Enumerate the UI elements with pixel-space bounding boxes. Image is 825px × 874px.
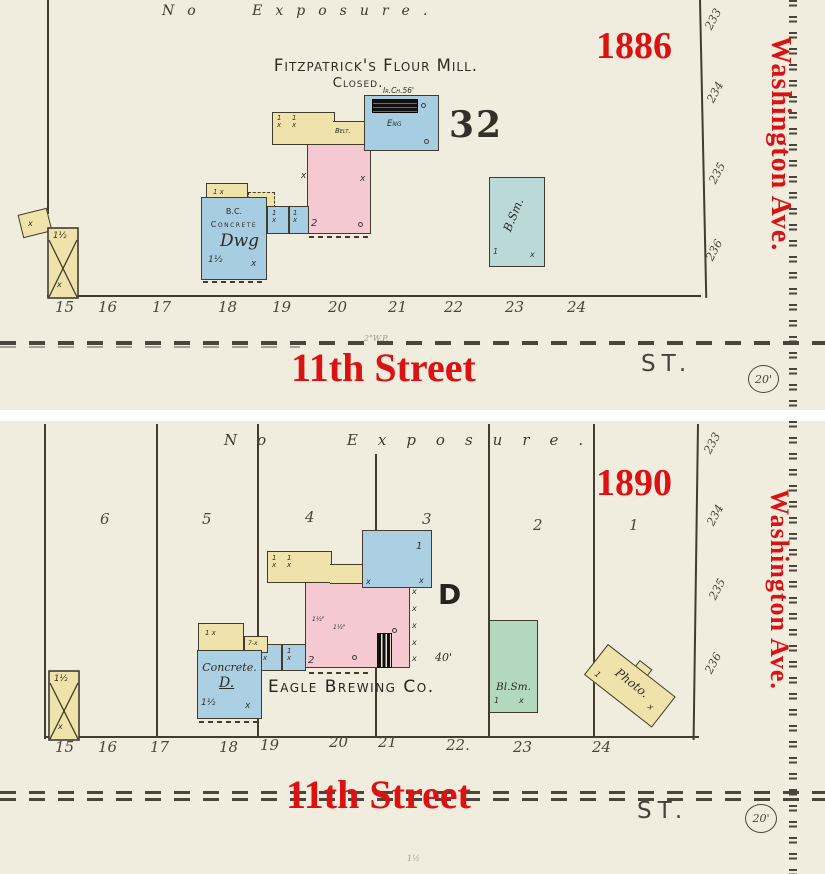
brewery-yellow-extension	[330, 564, 365, 584]
stories-x-mark: 1 x	[272, 555, 276, 568]
street-dash-line-secondary	[0, 346, 300, 348]
stories-label: 1	[416, 541, 422, 552]
small-yellow-building-1890	[198, 623, 244, 651]
hose-mark: 1½"	[333, 624, 345, 631]
lot-number: 17	[150, 738, 169, 756]
map-symbol-circle	[352, 655, 357, 660]
block-boundary-bottom-1886	[47, 295, 701, 297]
hatch-line	[309, 236, 369, 238]
lot-number: 23	[513, 738, 532, 756]
x-mark: x	[360, 174, 365, 184]
street-annotation-1890: 11th Street	[286, 771, 471, 818]
lot-number: 3	[422, 510, 432, 528]
lot-number: 20	[329, 733, 348, 751]
lot-number: 19	[260, 736, 279, 754]
dwelling-label: Dwg	[220, 231, 259, 251]
no-exposure-label-1886: No Exposure.	[162, 3, 492, 19]
lot-number: 18	[218, 298, 237, 316]
x-mark: x	[412, 587, 417, 596]
hose-mark: 1½"	[312, 616, 324, 623]
stories-label: 1½	[201, 698, 215, 708]
street-abbrev-1886: ST.	[641, 351, 692, 377]
district-letter: D	[438, 578, 461, 611]
stories-label: 1½	[208, 255, 222, 265]
mill-stories-label: 2	[311, 218, 317, 229]
mill-title: Fitzpatrick's Flour Mill.	[243, 56, 509, 75]
lot-number: 16	[98, 298, 117, 316]
block-boundary-left-1886	[47, 0, 49, 214]
lot-number: 5	[202, 510, 212, 528]
block-boundary-left-1890	[44, 424, 46, 739]
iron-chimney-note: Ir.Ch.56'	[383, 86, 414, 95]
stories-label: 1	[494, 696, 499, 705]
blacksmith-label-1890: Bl.Sm.	[490, 681, 537, 693]
stories-label: 2	[308, 655, 314, 666]
lot-line	[156, 424, 158, 737]
lot-number: 18	[219, 738, 238, 756]
stories-x-mark: 1 x	[205, 629, 216, 637]
x-mark: x	[412, 654, 417, 663]
x-mark: x	[28, 219, 33, 228]
year-annotation-1886: 1886	[596, 24, 672, 68]
lot-number: 22.	[446, 736, 470, 754]
x-mark: x	[530, 250, 535, 259]
lot-number: 24	[592, 738, 611, 756]
brewery-yellow-wing	[267, 551, 332, 583]
x-mark: x	[301, 171, 306, 181]
map-symbol-circle	[424, 139, 429, 144]
hatch-line	[199, 721, 261, 723]
x-mark: x	[57, 280, 62, 289]
x-mark: x	[251, 259, 256, 269]
shed-divider	[288, 206, 290, 234]
concrete-label-1890: Concrete.	[199, 661, 260, 674]
lot-number: 2	[533, 516, 543, 534]
stories-label: 1½	[54, 674, 68, 684]
water-pipe-note: 2"W.P.	[364, 334, 388, 343]
stories-x-mark: 1 x	[292, 115, 296, 128]
x-mark: x	[58, 722, 63, 731]
lot-number: 20	[328, 298, 347, 316]
dwelling-label-1890: D.	[219, 675, 234, 691]
elevator-symbol	[377, 633, 392, 668]
map-symbol-circle	[358, 222, 363, 227]
x-mark: x	[412, 604, 417, 613]
street-width-badge-1886: 20'	[748, 365, 779, 393]
stories-x-mark: 1 x	[287, 648, 291, 661]
stories-label: 1	[493, 247, 498, 256]
lot-number: 15	[55, 298, 74, 316]
hatch-line	[203, 281, 265, 283]
map-symbol-circle	[392, 628, 397, 633]
x-mark: x	[519, 696, 524, 705]
stories-x-mark: 7-x	[248, 640, 258, 647]
x-mark: x	[412, 638, 417, 647]
lot-number: 17	[152, 298, 171, 316]
lot-number: 21	[378, 733, 397, 751]
lot-number: 21	[388, 298, 407, 316]
map-symbol-circle	[421, 103, 426, 108]
street-width-badge-1890: 20'	[745, 804, 777, 833]
year-annotation-1890: 1890	[596, 461, 672, 505]
avenue-dash-line-1890	[789, 421, 797, 874]
concrete-label: Concrete	[204, 220, 264, 229]
x-mark: x	[366, 577, 371, 586]
shed-divider	[281, 644, 283, 671]
engine-label: Eng	[387, 119, 402, 129]
hatch-line	[309, 672, 371, 674]
x-mark: x	[412, 621, 417, 630]
stories-x-mark: 1 x	[272, 210, 276, 223]
lot-number: 23	[505, 298, 524, 316]
sanborn-map-comparison: No Exposure. 1886 Fitzpatrick's Flour Mi…	[0, 0, 825, 874]
lot-number: 4	[305, 508, 315, 526]
lot-number: 19	[272, 298, 291, 316]
street-annotation-1886: 11th Street	[291, 344, 476, 391]
lot-line	[593, 424, 595, 737]
stories-x-mark: 1 x	[213, 188, 224, 196]
no-exposure-label-1890: No Exposure.	[224, 431, 664, 449]
street-abbrev-1890: ST.	[637, 798, 688, 824]
belt-label: Belt.	[335, 127, 351, 135]
x-mark: x	[419, 576, 424, 585]
lot-number: 15	[55, 738, 74, 756]
bc-label: B.C.	[219, 207, 249, 216]
pipe-note: 1½	[407, 854, 420, 863]
lot-number: 1	[629, 516, 639, 534]
stories-label: 1½	[53, 231, 67, 241]
brewery-main-building	[305, 579, 410, 668]
lot-number: 24	[567, 298, 586, 316]
stories-x-mark: 1 x	[277, 115, 281, 128]
brewery-company-label: Eagle Brewing Co.	[268, 677, 435, 697]
dimension-label: 40'	[435, 651, 452, 664]
lot-number: 16	[98, 738, 117, 756]
block-number: 32	[449, 104, 503, 146]
lot-number: 22	[444, 298, 463, 316]
avenue-dash-line-1886	[789, 0, 797, 410]
x-mark: x	[245, 701, 250, 711]
stories-x-mark: 1 x	[287, 555, 291, 568]
boiler-symbol	[372, 99, 418, 113]
lot-number: 6	[100, 510, 110, 528]
stories-x-mark: 1 x	[293, 210, 297, 223]
